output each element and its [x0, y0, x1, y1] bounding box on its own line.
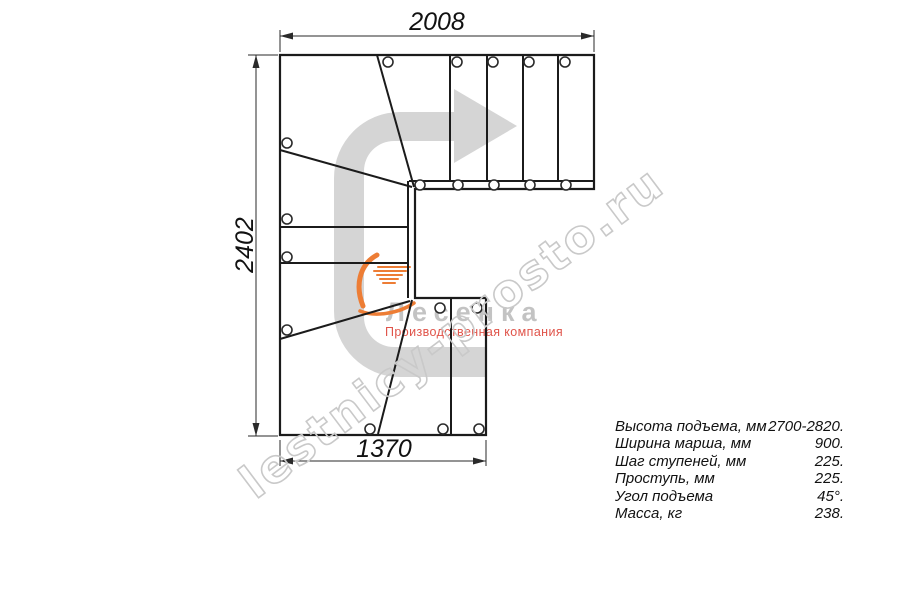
spec-value: 2700-2820. — [768, 418, 844, 435]
spec-row: Шаг ступеней, мм 225. — [615, 453, 844, 470]
spec-value: 900. — [815, 435, 844, 452]
spec-row: Высота подъема, мм 2700-2820. — [615, 418, 844, 435]
spec-label: Ширина марша, мм — [615, 435, 751, 452]
spec-table: Высота подъема, мм 2700-2820. Ширина мар… — [615, 418, 844, 522]
spec-row: Ширина марша, мм 900. — [615, 435, 844, 452]
spec-value: 225. — [815, 453, 844, 470]
dim-label-bottom: 1370 — [356, 435, 412, 463]
spec-label: Высота подъема, мм — [615, 418, 767, 435]
stair-drawing-page: Лесенка Производственная компания — [0, 0, 900, 600]
dim-label-top: 2008 — [408, 8, 465, 36]
spec-value: 45°. — [817, 488, 844, 505]
spec-label: Угол подъема — [615, 488, 713, 505]
spec-row: Масса, кг 238. — [615, 505, 844, 522]
spec-row: Проступь, мм 225. — [615, 470, 844, 487]
spec-value: 238. — [815, 505, 844, 522]
spec-label: Проступь, мм — [615, 470, 715, 487]
spec-label: Шаг ступеней, мм — [615, 453, 746, 470]
dim-label-left: 2402 — [231, 217, 259, 274]
spec-row: Угол подъема 45°. — [615, 488, 844, 505]
spec-label: Масса, кг — [615, 505, 682, 522]
spec-value: 225. — [815, 470, 844, 487]
